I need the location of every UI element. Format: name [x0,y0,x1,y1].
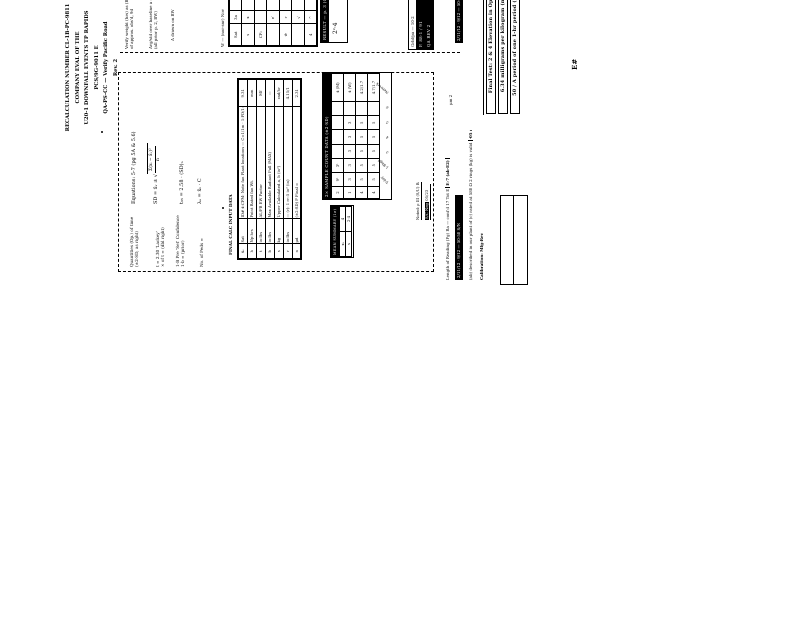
table-row: CF₂+5 [254,0,267,46]
list-item: W — (nor-snr) Nov [220,0,225,47]
table-cell: 3 [344,116,356,130]
equation-header: Equations: 5-7 (pg 5A & 5.6) [131,131,137,204]
table-cell: Max Available Radiant Pull (MAX) [265,107,274,219]
table-cell: 5 [356,116,368,130]
table-row: s2·4 [346,207,352,257]
table-cell [267,24,280,46]
footer-line-3-text: (ab) described in our plant of (c) rated… [468,141,473,280]
list-item: × of t = (dbl right) [160,209,165,267]
table-cell: 3 [344,172,356,186]
table-cell [332,130,344,144]
list-item: (all prior p. 2, BW) [153,0,158,49]
table-cell: 4.2/1.7 [356,74,368,102]
table-cell: x̄ (M) [332,74,344,102]
table-cell: s [346,232,352,257]
note-3: A drawn on BW [170,0,175,41]
table-cell: 5 [368,116,380,130]
table-cell: 5 [356,144,368,158]
bottom-strip-rule [483,0,484,115]
sample-data-table: 29¹3¹x̄ (M)133333x̄ (W)4555554.2/1.74555… [331,73,380,199]
list-item: 1·b = (prior) [180,209,185,267]
table-cell: x̄ᵥ [238,244,247,259]
table-cell: 5 [368,144,380,158]
table-cell [332,102,344,116]
table-cell: CF₂ [254,24,267,46]
table-row: 29¹3¹x̄ (M) [332,74,344,199]
equation-lambda: λₐ = x̄ᵥ · C [197,178,203,204]
scanned-document-page: RECALCULATION NUMBER CL-1B-PC-9811 COMPA… [60,0,530,300]
list-item: T-day [379,174,390,184]
table-cell: ȧ [229,0,242,11]
list-item: (±2-SD, as right) [134,209,139,267]
table-row: bin-lbsMax Available Radiant Pull (MAX)— [265,79,274,259]
table-cell: Point Rated fan Wt. [247,107,256,219]
table-cell: in-lbs [283,219,292,244]
table-cell: Sat [238,219,247,244]
table-cell [368,102,380,116]
footer-line-3-badge: ·05 mg/L [468,130,473,141]
table-row: skgUpper Calculated a, b (in²)rad/hr [274,79,283,259]
sample-data-header: 2× SAMPLE COUNT DATA (±2·SD) [323,73,331,199]
table-cell: s [242,24,255,46]
document-title-block: RECALCULATION NUMBER CL-1B-PC-9811 COMPA… [64,0,121,135]
signature-grid [500,195,528,285]
table-row: rin-lbs— (r): 1 rr–5 in² (in)4.15/1 [283,79,292,259]
mean-summary-header: MEAN SUMMARY (1σ) [331,206,339,257]
table-cell: 4 [356,187,368,199]
result-totals-value: 2ᶜ·4 [329,0,339,42]
note-2: Avg/std over baseline a =(all prior p. 2… [148,0,158,49]
list-item: 1-Bkgd [379,159,390,169]
scan-speck [101,131,103,133]
signature-cell [514,196,527,284]
table-row: 4^+ [304,0,317,46]
stray-annotation-mark: E# [570,50,582,70]
table-row: 4555554.7/1.7 [368,74,380,199]
table-cell [332,116,344,130]
list-item: 6 [379,99,390,109]
table-row: hNp-hrsPoint Rated fan Wt.mm [247,79,256,259]
note-1: Verify weight (hrs) as (BW)of approx. ob… [124,0,134,49]
table-cell: 5 [356,172,368,186]
revision-bar: 2/11/12 · 9/12 — 50-50 S/N [455,0,463,43]
footer-line-1-text: Length of Reading (Pg) Ra — cont'd 17 To… [445,188,450,280]
table-cell: in-lbs [265,219,274,244]
table-cell: h [247,244,256,259]
analysis-mode-band: P. 88-1 / 91 [417,0,425,49]
table-cell: s [274,244,283,259]
table-cell: Upper Calculated a, b (in²) [274,107,283,219]
equation-t: t₉₅ = 2.58 · (SD)ₙ [179,161,185,204]
table-row: 133333x̄ (W) [344,74,356,199]
mean-summary-table: xᵢ4s2·4 [339,206,352,257]
table-cell: 4 [292,0,305,11]
list-item: A drawn on BW [170,0,175,41]
table-row: nμd(±2-SD) F Final =2.31 [292,79,301,259]
table-cell: ṡ [267,0,280,11]
table-cell: +5 [254,0,267,11]
mean-summary-box: MEAN SUMMARY (1σ) xᵢ4s2·4 [330,205,354,258]
analysis-mode-band2: QA REV 2 [425,0,433,49]
table-cell: Sat [229,24,242,46]
equation-sd-lhs: SD = x̄ᵥ ± [153,179,159,204]
table-cell: AL/FB EW Factor [256,107,265,219]
table-cell: + [304,0,317,11]
table-row: sx4⁵ [242,0,255,46]
table-cell: 5 [356,158,368,172]
list-item: 5 [379,114,390,124]
table-cell: 3¹ [332,158,344,172]
table-cell [292,24,305,46]
result-statement-3: 50 / A period of one 1-hr period (In/Out… [510,0,520,114]
footer-inverted-bar: 2/11/12 · 9/12 — 50-50 S/N [455,195,463,280]
table-cell: 4.15/1 [283,79,292,107]
check-signoff-badge: S/C Neg [425,202,429,220]
table-cell [344,102,356,116]
list-item: RECALCULATION NUMBER CL-1B-PC-9811 COMPA… [64,0,83,135]
table-cell: — (r): 1 rr–5 in² (in) [283,107,292,219]
table-cell: kg [274,219,283,244]
table-row: tin-lbsAL/FB EW FactorMf [256,79,265,259]
table-cell: x [242,11,255,24]
footer-line-3: (ab) described in our plant of (c) rated… [468,130,473,280]
calc-label-3: 1-B Pre 'Set' Confidence1·b = (prior) [175,209,185,267]
table-row: e′ṡ [267,0,280,46]
table-cell: μd [292,219,301,244]
table-cell: 1 [344,187,356,199]
calc-label-4: No. of Peds = [199,209,204,267]
sample-data-table-wrap: 2× SAMPLE COUNT DATA (±2·SD) 29¹3¹x̄ (M)… [322,72,392,200]
result-totals-header: RESULT — p. 3 (C/S) [321,0,329,42]
table-row: 4555554.2/1.7 [356,74,368,199]
table-cell: 4⁵ [242,0,255,11]
table-cell: 3a [229,11,242,24]
table-cell: — [265,79,274,107]
list-item: 3 [379,144,390,154]
table-cell: mm [247,79,256,107]
input-table-title: FINAL CALC INPUT DATA [228,195,233,255]
table-cell: r [279,11,292,24]
signature-cell [501,196,514,284]
prep-signoff-line: Noted: ρ III (S/U) Baseline [416,182,422,220]
table-cell: e′ [267,11,280,24]
table-cell: 4 [304,24,317,46]
result-statement-2: 6.34 milligrams per kilogram (mg/kg) [498,0,508,114]
check-signoff-date: 05/23 [425,190,429,202]
table-cell [254,11,267,24]
table-cell [356,102,368,116]
table-cell: (±2-SD) F Final = [292,107,301,219]
table-cell [332,144,344,158]
table-cell: 2.31 [292,79,301,107]
list-item: Network [379,84,390,94]
table-cell: 3 [344,144,356,158]
list-item: of approx. obs'd, 9d [129,0,134,49]
table-cell: w̄ [279,24,292,46]
radical-sign: √ [153,174,159,177]
scan-canvas: { "title_lines": [ "RECALCULATION NUMBER… [0,0,800,618]
result-totals-box: RESULT — p. 3 (C/S) 2ᶜ·4 [320,0,348,43]
table-cell: t [256,244,265,259]
table-cell: 9.31 [238,79,247,107]
table-cell: Np-hrs [247,219,256,244]
table-row: Sat3aȧ [229,0,242,46]
note-4: W — (nor-snr) Nov [220,0,225,47]
table-cell: 9¹ [332,172,344,186]
equation-sd: SD = x̄ᵥ ± √Σ(xᵢ − x̄ᵥ)²n [147,143,162,204]
analysis-mode-block: Grbl/pa — 10·2 P. 88-1 / 91 QA REV 2 [408,0,434,50]
table-row: √4 [292,0,305,46]
footer-line-1-badge: E-7 (ab·E2) [445,158,450,187]
table-cell: 2 [332,187,344,199]
table-cell: − [279,0,292,11]
table-cell: 5 [368,172,380,186]
sample-column-labels: T-day1-Bkgd3456Network [380,73,386,199]
table-cell: rad/hr [274,79,283,107]
coefficient-table: Sat3aȧsx4⁵CF₂+5e′ṡw̄r−√44^+ [228,0,318,47]
table-cell: 3 [344,158,356,172]
calc-label-1: Quantities (Op.) of time(±2-SD, as right… [129,209,139,267]
table-cell: 4 [368,187,380,199]
list-item: QA-PS-CC — Verify Pacific Road [102,0,112,135]
table-cell: 2·4 [346,207,352,232]
table-row: x̄ᵥSatID# x̄-CFM: Note fan Plant locatio… [238,79,247,259]
table-cell: √ [292,11,305,24]
analysis-mode-row: Grbl/pa — 10·2 [409,0,417,49]
table-cell: in-lbs [256,219,265,244]
input-data-table: x̄ᵥSatID# x̄-CFM: Note fan Plant locatio… [237,78,302,260]
check-signoff-line: S/C Neg 05/23 [425,184,431,220]
table-cell: Mf [256,79,265,107]
footer-fragment: μm 2 [448,87,453,105]
table-cell: ^ [304,11,317,24]
table-cell: 3 [344,130,356,144]
table-row: w̄r− [279,0,292,46]
table-cell: b [265,244,274,259]
equation-sd-denominator: n [156,158,161,161]
table-cell: ID# x̄-CFM: Note fan Plant locations — C… [238,107,247,219]
result-statement-1: Final Test: 2 & 4 Elevation in Opposite [486,0,496,114]
footer-line-4: Calibration: Mfg-Rev [479,225,484,280]
list-item: 4 [379,129,390,139]
calc-label-2: t = 2.30 'Lackey'× of t = (dbl right) [155,209,165,267]
table-cell: n [292,244,301,259]
list-item: U20-1 DOWNFALL EVENTS TP RAPIDS PCS/9G-9… [83,0,102,135]
table-cell: r [283,244,292,259]
footer-line-1: Length of Reading (Pg) Ra — cont'd 17 To… [445,140,450,280]
list-item: No. of Peds = [199,209,204,267]
table-cell: 5 [356,130,368,144]
table-cell: x̄ (W) [344,74,356,102]
equation-sd-numerator: Σ(xᵢ − x̄ᵥ)² [149,146,156,173]
